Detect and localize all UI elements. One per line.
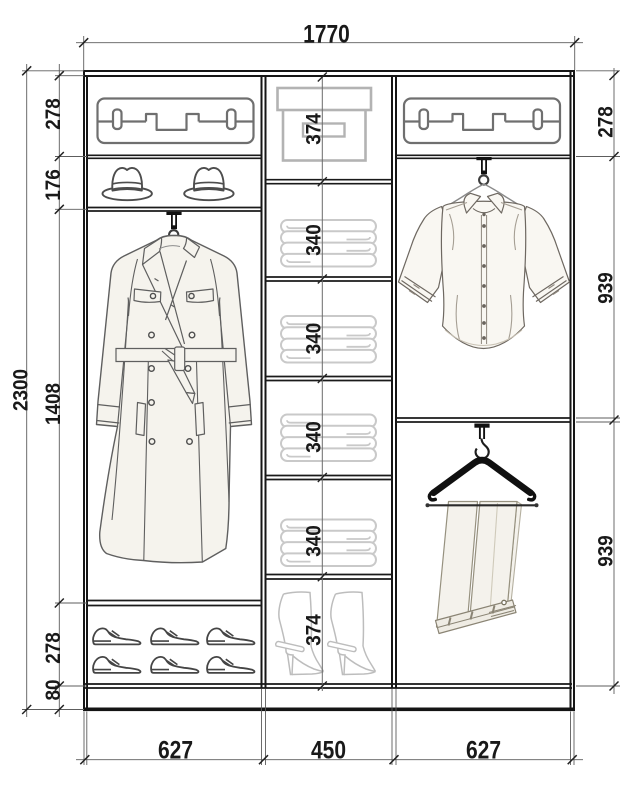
- svg-text:1408: 1408: [42, 383, 65, 425]
- svg-text:340: 340: [303, 421, 326, 453]
- svg-text:374: 374: [303, 113, 326, 145]
- svg-text:278: 278: [595, 106, 618, 138]
- svg-text:939: 939: [595, 272, 618, 304]
- svg-text:450: 450: [311, 736, 346, 764]
- svg-text:340: 340: [303, 525, 326, 557]
- svg-text:278: 278: [42, 98, 65, 130]
- svg-text:627: 627: [158, 736, 193, 764]
- svg-text:340: 340: [303, 323, 326, 355]
- svg-text:80: 80: [42, 679, 65, 700]
- svg-text:278: 278: [42, 632, 65, 664]
- svg-text:2300: 2300: [10, 369, 33, 411]
- svg-text:939: 939: [595, 535, 618, 567]
- svg-text:1770: 1770: [303, 20, 350, 48]
- svg-text:340: 340: [303, 224, 326, 256]
- svg-text:374: 374: [303, 614, 326, 646]
- svg-text:176: 176: [42, 169, 65, 201]
- svg-text:627: 627: [466, 736, 501, 764]
